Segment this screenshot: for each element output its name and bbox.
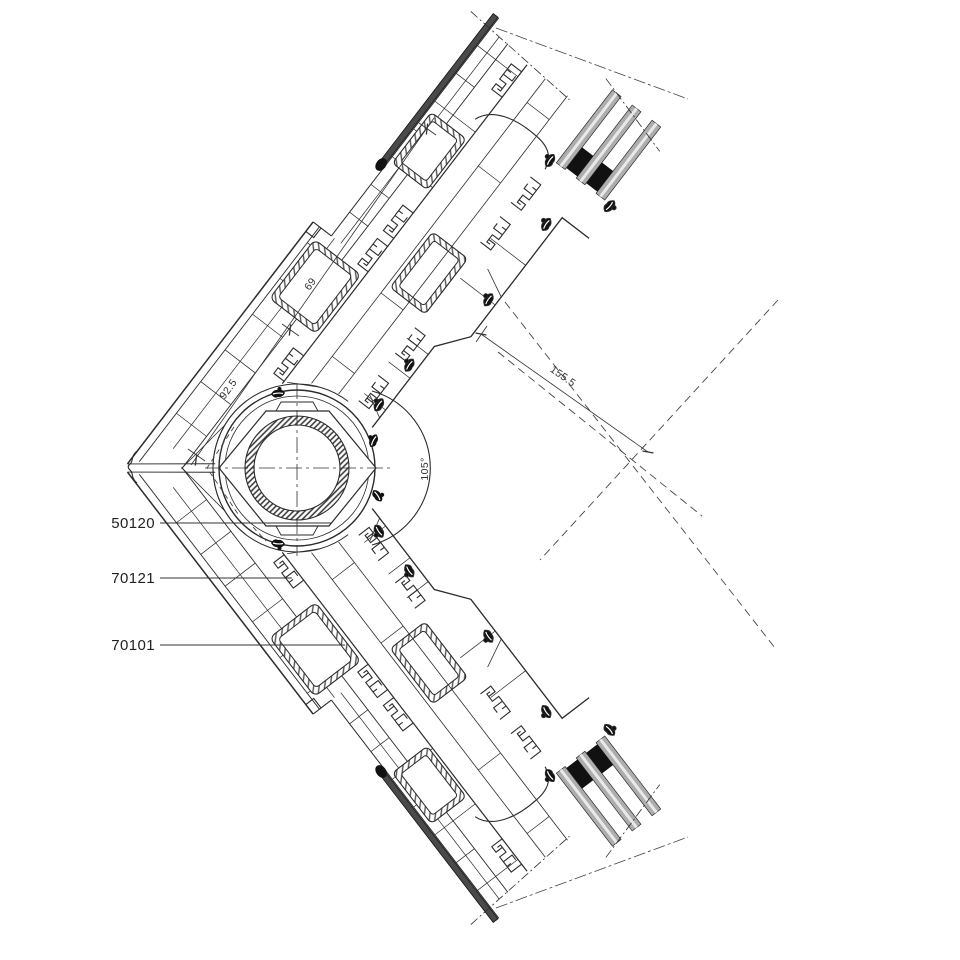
part-label: 70101 [111,637,155,654]
corner-section-drawing: 92.5 69 155.5 105° 50120 70121 70101 [0,0,960,960]
angle-dimension-text: 105° [419,457,431,480]
projection-dashed-lines [498,300,778,648]
corner-tube-connector [205,383,430,556]
lower-profile-arm [125,331,675,948]
part-label: 50120 [111,515,155,532]
technical-drawing-page: 92.5 69 155.5 105° 50120 70121 70101 [0,0,960,960]
part-label: 70121 [111,570,155,587]
dimension-text: 155.5 [548,364,578,390]
upper-profile-arm [125,0,675,605]
